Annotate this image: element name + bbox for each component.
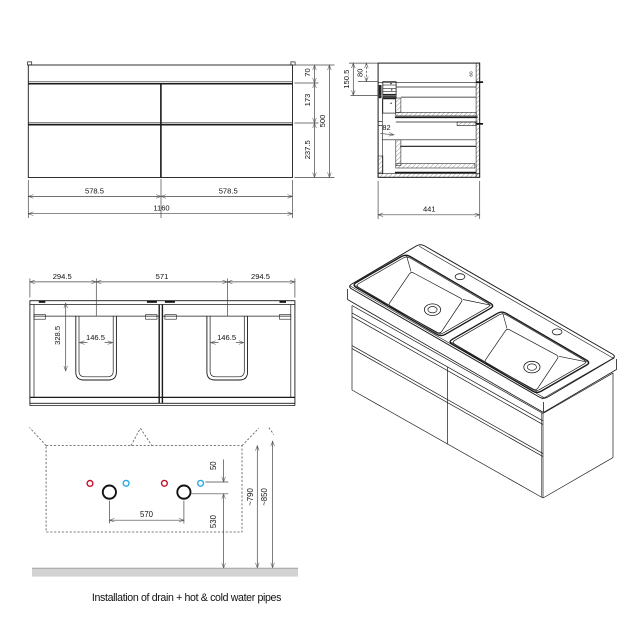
svg-text:328.5: 328.5 [53, 326, 62, 345]
svg-text:441: 441 [423, 205, 436, 214]
svg-text:571: 571 [156, 272, 169, 281]
svg-text:578.5: 578.5 [219, 186, 238, 195]
svg-text:173: 173 [303, 94, 312, 107]
svg-text:530: 530 [209, 514, 218, 528]
svg-text:294.5: 294.5 [53, 272, 72, 281]
svg-text:80: 80 [355, 69, 364, 77]
svg-text:Installation of drain + hot &: Installation of drain + hot & cold water… [92, 592, 281, 604]
svg-text:150.5: 150.5 [342, 70, 351, 89]
svg-text:500: 500 [318, 115, 327, 128]
svg-text:70: 70 [303, 68, 312, 76]
svg-text:570: 570 [140, 510, 154, 519]
svg-text:50: 50 [209, 461, 218, 470]
svg-text:~850: ~850 [260, 488, 269, 506]
svg-text:146.5: 146.5 [217, 333, 236, 342]
svg-text:~790: ~790 [246, 488, 255, 506]
svg-text:146.5: 146.5 [86, 333, 105, 342]
svg-text:1160: 1160 [153, 204, 169, 213]
svg-text:237.5: 237.5 [303, 140, 312, 159]
svg-text:60: 60 [469, 71, 474, 77]
svg-text:82: 82 [382, 123, 390, 132]
svg-text:294.5: 294.5 [251, 272, 270, 281]
svg-text:578.5: 578.5 [85, 186, 104, 195]
